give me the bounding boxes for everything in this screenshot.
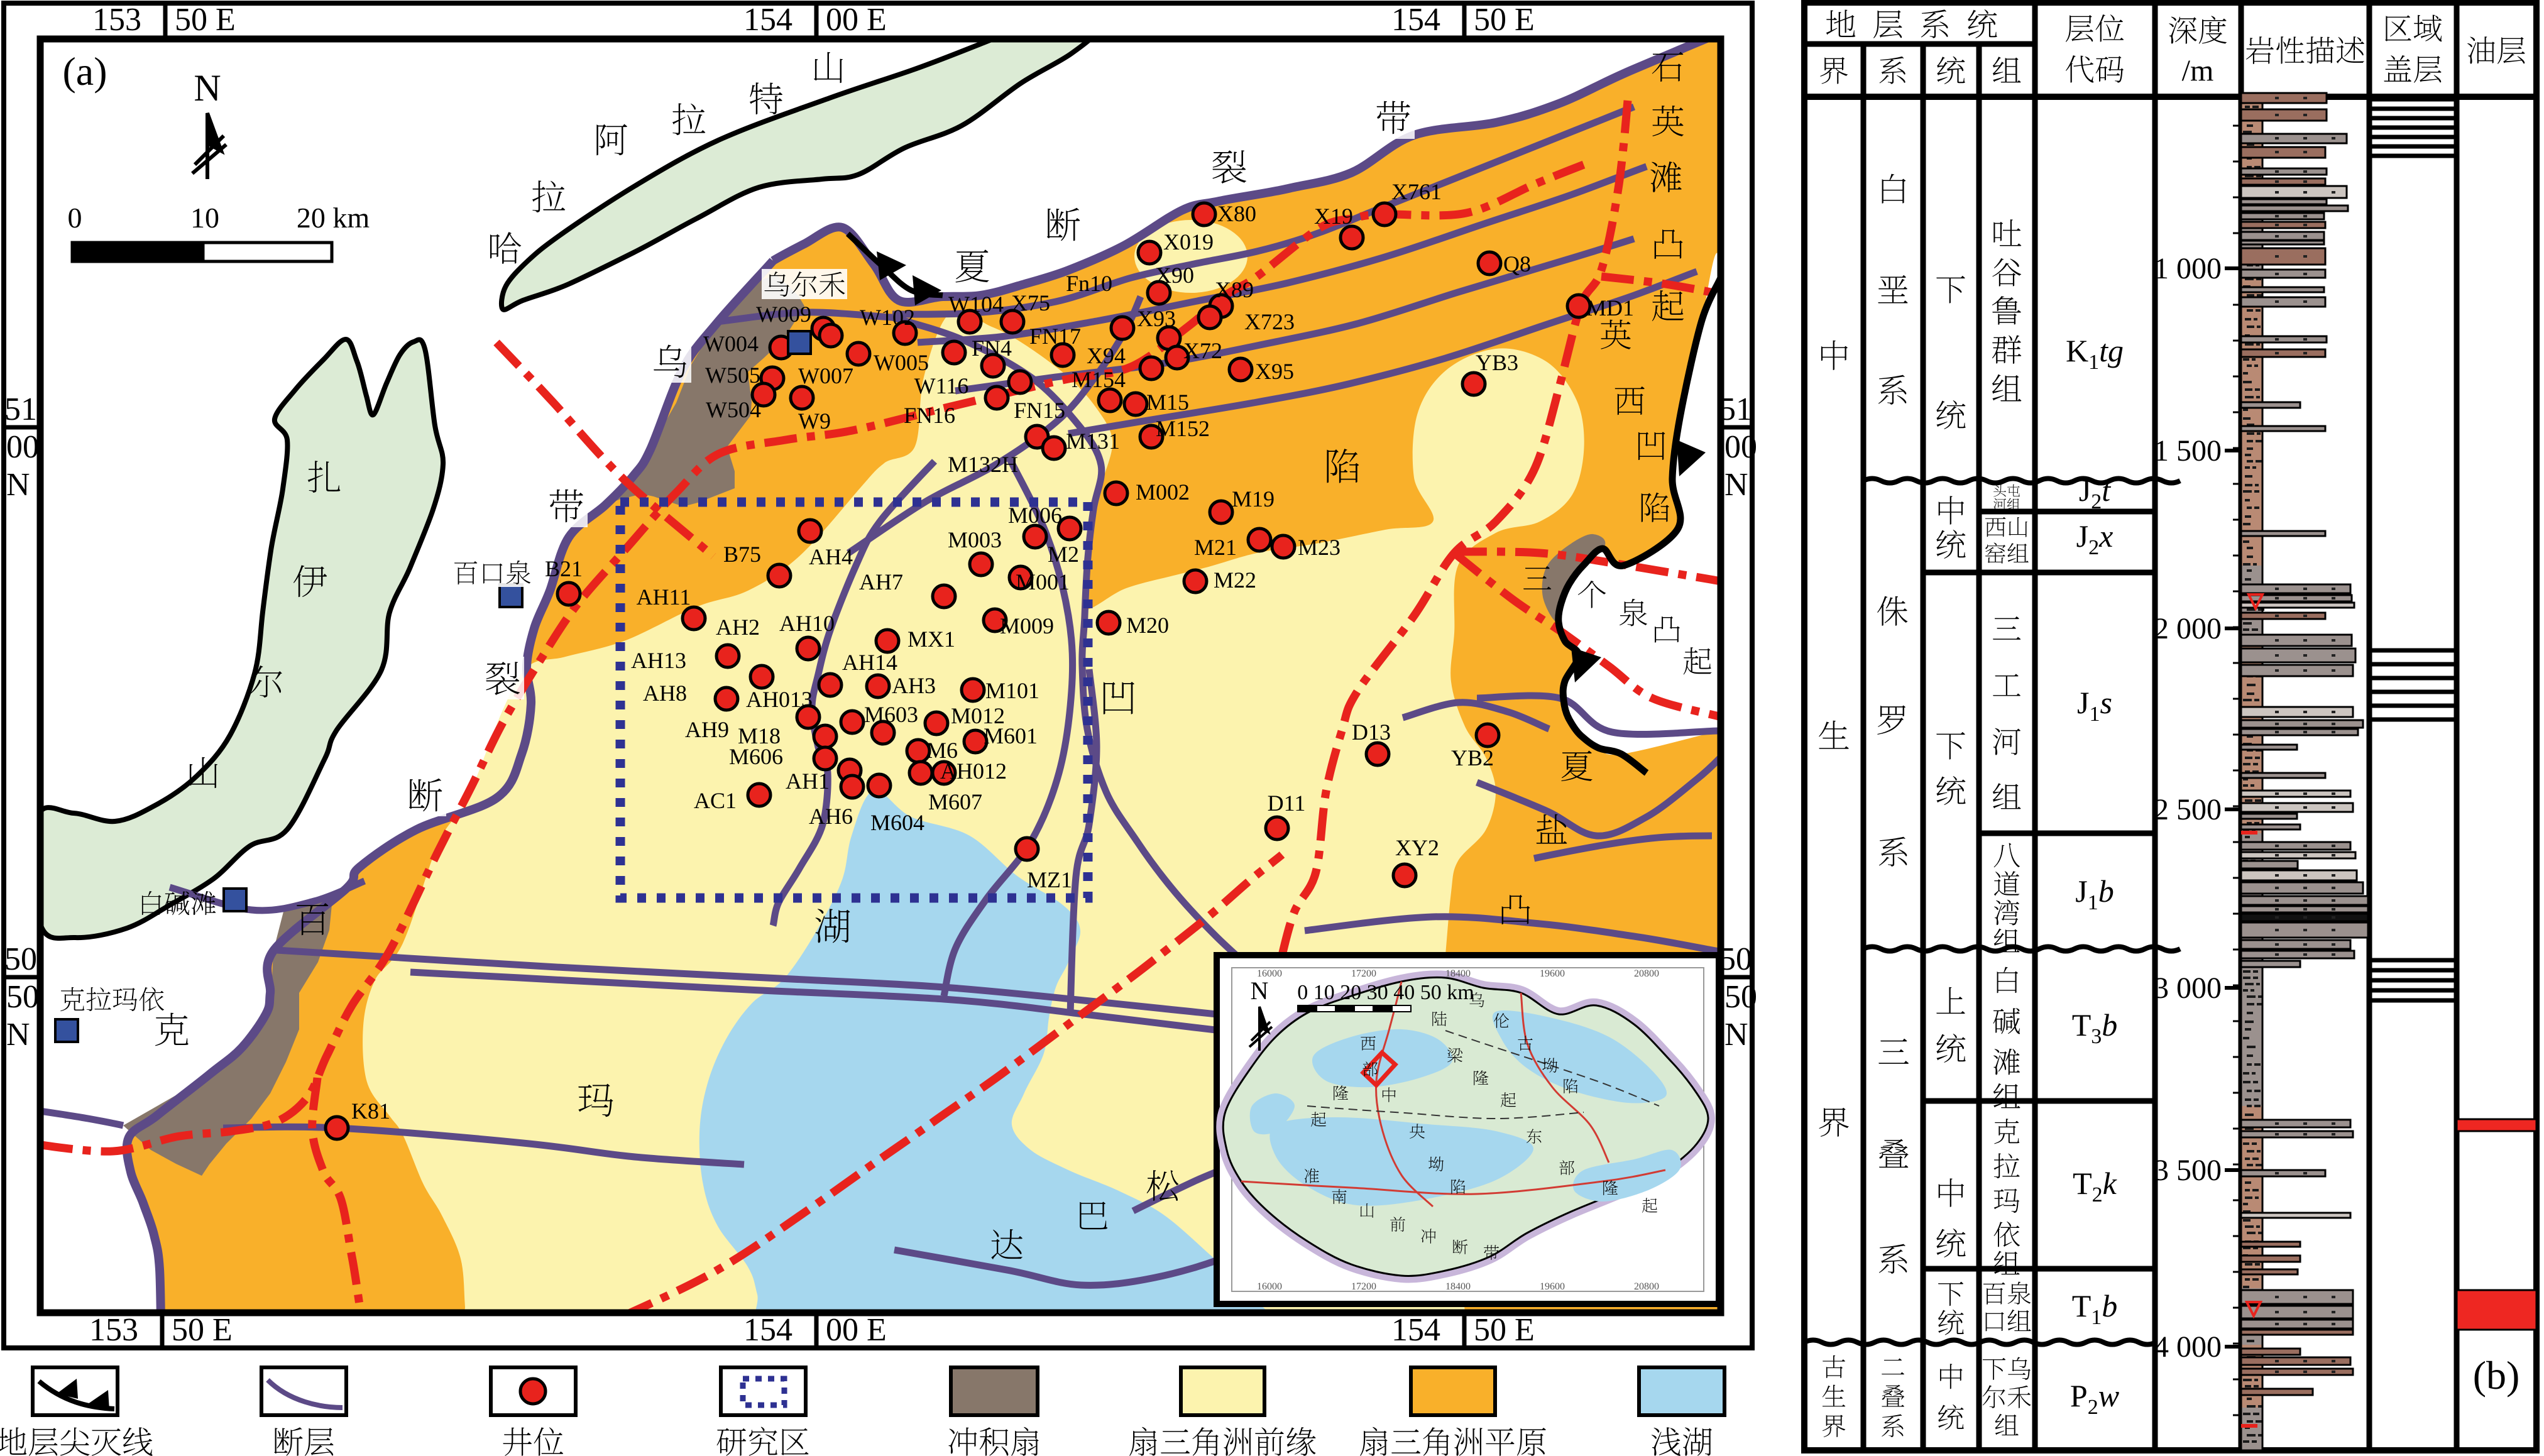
- svg-text:FN16: FN16: [904, 403, 955, 428]
- svg-text:3 000: 3 000: [2154, 972, 2222, 1005]
- svg-text:X19: X19: [1314, 204, 1353, 229]
- svg-text:N: N: [1724, 467, 1748, 503]
- svg-text:K81: K81: [351, 1098, 390, 1124]
- svg-text:W007: W007: [798, 363, 853, 388]
- svg-text:19600: 19600: [1540, 1281, 1565, 1292]
- svg-text:20800: 20800: [1634, 1281, 1659, 1292]
- svg-text:AH8: AH8: [643, 681, 687, 706]
- svg-text:AH13: AH13: [631, 648, 686, 673]
- svg-text:1 500: 1 500: [2154, 434, 2222, 468]
- svg-text:00: 00: [6, 429, 39, 465]
- svg-text:3 500: 3 500: [2154, 1154, 2222, 1187]
- svg-text:(b): (b): [2473, 1353, 2520, 1398]
- svg-text:50 E: 50 E: [1474, 1312, 1535, 1348]
- svg-text:M607: M607: [928, 789, 982, 814]
- svg-text:YB3: YB3: [1476, 350, 1518, 375]
- svg-text:10: 10: [190, 202, 219, 234]
- svg-text:M2: M2: [1048, 542, 1079, 567]
- svg-text:X90: X90: [1155, 263, 1194, 288]
- svg-text:50 E: 50 E: [175, 2, 236, 38]
- svg-text:M603: M603: [864, 702, 918, 727]
- svg-text:2 500: 2 500: [2154, 793, 2222, 826]
- svg-text:M15: M15: [1146, 390, 1189, 415]
- svg-text:Fn10: Fn10: [1066, 271, 1112, 296]
- svg-text:N: N: [1724, 1017, 1748, 1053]
- svg-text:W9: W9: [798, 408, 831, 434]
- svg-text:M606: M606: [729, 744, 783, 769]
- svg-text:M22: M22: [1214, 567, 1256, 593]
- svg-text:M604: M604: [870, 810, 924, 835]
- svg-text:Q8: Q8: [1503, 251, 1531, 276]
- svg-text:17200: 17200: [1351, 968, 1376, 979]
- svg-text:M601: M601: [984, 723, 1038, 748]
- svg-text:M154: M154: [1072, 367, 1126, 392]
- svg-text:MD1: MD1: [1586, 295, 1634, 320]
- svg-text:50: 50: [4, 941, 37, 977]
- svg-text:FN17: FN17: [1029, 324, 1081, 349]
- svg-text:D13: D13: [1352, 720, 1391, 745]
- svg-text:B21: B21: [545, 556, 583, 581]
- svg-text:X761: X761: [1391, 179, 1442, 204]
- svg-text:T1b: T1b: [2072, 1288, 2118, 1329]
- svg-text:AH14: AH14: [842, 650, 897, 675]
- svg-text:154: 154: [743, 2, 792, 38]
- svg-text:16000: 16000: [1257, 968, 1282, 979]
- svg-text:W102: W102: [860, 305, 915, 330]
- svg-text:T3b: T3b: [2072, 1007, 2118, 1048]
- svg-text:M001: M001: [1016, 569, 1070, 594]
- svg-text:X75: X75: [1011, 290, 1050, 315]
- svg-text:D11: D11: [1268, 791, 1306, 816]
- svg-text:18400: 18400: [1445, 1281, 1471, 1292]
- svg-text:00: 00: [1724, 429, 1757, 465]
- svg-text:T2k: T2k: [2073, 1166, 2117, 1207]
- svg-text:B75: B75: [723, 542, 761, 567]
- svg-text:M101: M101: [985, 678, 1039, 703]
- svg-text:AH012: AH012: [940, 758, 1007, 784]
- svg-text:X723: X723: [1244, 309, 1295, 334]
- svg-text:4 000: 4 000: [2154, 1330, 2222, 1364]
- svg-text:154: 154: [1391, 2, 1440, 38]
- svg-text:MX1: MX1: [907, 627, 955, 652]
- svg-text:/m: /m: [2182, 54, 2214, 87]
- svg-text:J1b: J1b: [2075, 873, 2114, 914]
- svg-text:51: 51: [4, 391, 37, 427]
- svg-text:51: 51: [1719, 391, 1752, 427]
- svg-text:M002: M002: [1136, 479, 1190, 505]
- svg-text:0: 0: [68, 202, 82, 234]
- svg-text:0 10 20 30 40 50 km: 0 10 20 30 40 50 km: [1297, 981, 1474, 1004]
- svg-text:P2w: P2w: [2070, 1378, 2119, 1419]
- svg-text:W005: W005: [874, 350, 929, 375]
- svg-text:153: 153: [92, 2, 141, 38]
- svg-text:X80: X80: [1217, 201, 1256, 226]
- svg-text:M152: M152: [1156, 416, 1210, 441]
- svg-text:M19: M19: [1232, 486, 1275, 512]
- svg-text:154: 154: [1391, 1312, 1440, 1348]
- svg-text:50: 50: [6, 979, 39, 1015]
- svg-text:X95: X95: [1255, 359, 1294, 384]
- svg-text:J1s: J1s: [2077, 685, 2112, 726]
- svg-text:W504: W504: [706, 397, 761, 422]
- svg-text:M23: M23: [1298, 535, 1341, 560]
- svg-text:AH1: AH1: [786, 769, 830, 794]
- svg-text:20800: 20800: [1634, 968, 1659, 979]
- svg-text:N: N: [194, 67, 221, 109]
- svg-text:AH013: AH013: [746, 687, 813, 712]
- svg-text:N: N: [1251, 977, 1269, 1005]
- svg-text:N: N: [6, 1017, 30, 1053]
- svg-text:FN4: FN4: [972, 336, 1012, 361]
- svg-text:X019: X019: [1163, 229, 1214, 255]
- svg-text:W505: W505: [705, 363, 760, 388]
- svg-text:AH10: AH10: [779, 611, 835, 636]
- svg-text:X94: X94: [1087, 343, 1126, 368]
- svg-text:XY2: XY2: [1395, 835, 1439, 860]
- svg-text:X93: X93: [1137, 306, 1176, 331]
- svg-text:154: 154: [743, 1312, 792, 1348]
- svg-text:AH9: AH9: [685, 717, 729, 742]
- svg-text:00 E: 00 E: [826, 2, 887, 38]
- svg-text:19600: 19600: [1540, 968, 1565, 979]
- svg-text:18400: 18400: [1445, 968, 1471, 979]
- svg-text:M131: M131: [1066, 429, 1120, 454]
- svg-text:17200: 17200: [1351, 1281, 1376, 1292]
- svg-text:2 000: 2 000: [2154, 612, 2222, 645]
- svg-text:J2t: J2t: [2079, 473, 2111, 513]
- svg-text:M009: M009: [1000, 613, 1054, 638]
- svg-text:M132H: M132H: [948, 452, 1018, 477]
- svg-text:AH7: AH7: [859, 569, 903, 594]
- svg-text:X72: X72: [1183, 338, 1222, 363]
- svg-text:00 E: 00 E: [826, 1312, 887, 1348]
- svg-text:YB2: YB2: [1451, 745, 1494, 770]
- svg-text:50 E: 50 E: [172, 1312, 233, 1348]
- svg-text:M21: M21: [1194, 535, 1237, 560]
- svg-text:M006: M006: [1008, 503, 1062, 528]
- svg-text:AC1: AC1: [694, 788, 737, 813]
- svg-text:AH6: AH6: [809, 804, 853, 829]
- svg-text:50: 50: [1724, 979, 1757, 1015]
- svg-text:W009: W009: [756, 302, 811, 327]
- svg-text:W004: W004: [703, 331, 759, 356]
- svg-text:X89: X89: [1215, 277, 1254, 302]
- svg-text:16000: 16000: [1257, 1281, 1282, 1292]
- svg-text:K1tg: K1tg: [2066, 333, 2124, 374]
- svg-text:FN15: FN15: [1014, 398, 1065, 423]
- svg-text:AH3: AH3: [892, 673, 936, 698]
- svg-text:(a): (a): [62, 49, 107, 94]
- svg-text:AH2: AH2: [716, 615, 760, 640]
- svg-text:20 km: 20 km: [297, 202, 370, 234]
- svg-text:W116: W116: [914, 373, 969, 398]
- svg-text:W104: W104: [948, 292, 1004, 317]
- svg-text:N: N: [6, 467, 30, 503]
- svg-text:1 000: 1 000: [2154, 252, 2222, 285]
- svg-text:AH11: AH11: [637, 584, 691, 610]
- svg-text:M003: M003: [948, 527, 1002, 552]
- svg-text:50: 50: [1719, 941, 1752, 977]
- svg-text:MZ1: MZ1: [1027, 867, 1072, 892]
- svg-text:153: 153: [89, 1312, 138, 1348]
- svg-text:J2x: J2x: [2076, 518, 2114, 559]
- svg-text:M20: M20: [1126, 613, 1169, 638]
- svg-text:AH4: AH4: [809, 544, 853, 569]
- svg-text:50 E: 50 E: [1474, 2, 1535, 38]
